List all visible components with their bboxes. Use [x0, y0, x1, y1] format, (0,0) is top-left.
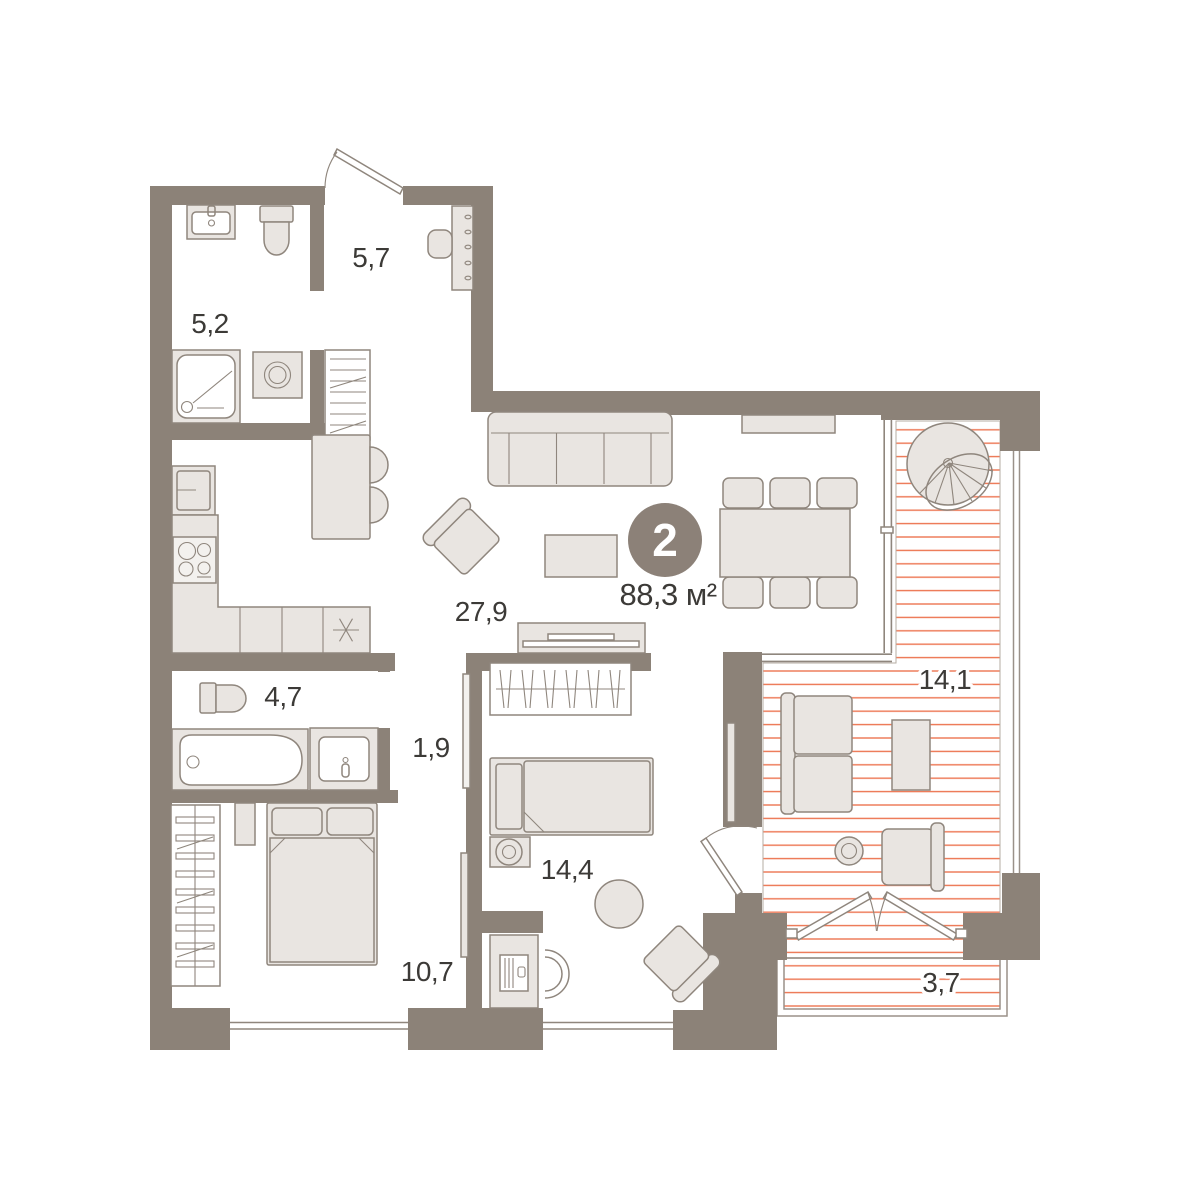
room-label-hallway: 5,7 [352, 242, 389, 273]
hall-bench [428, 230, 452, 258]
headboard [496, 764, 522, 829]
dining-chair [723, 577, 763, 608]
stove [173, 537, 216, 583]
washing-machine [253, 352, 302, 398]
room-label-corridor: 1,9 [412, 732, 449, 763]
floor-plan: 5,7 5,2 27,9 4,7 1,9 10,7 14,4 14,1 3,7 … [0, 0, 1190, 1200]
total-area-label: 88,3 м² [619, 577, 716, 612]
wardrobe-hangers [490, 663, 631, 715]
apartment-badge: 2 88,3 м² [619, 503, 716, 612]
room-label-bedroom-mid: 14,4 [541, 854, 594, 885]
dining-chair [770, 577, 810, 608]
bedroom-mid-furniture [490, 663, 757, 1008]
dining-chair [817, 478, 857, 508]
dining-chair [770, 478, 810, 508]
floor-plan-page: 5,7 5,2 27,9 4,7 1,9 10,7 14,4 14,1 3,7 … [0, 0, 1190, 1200]
outdoor-armchair [882, 823, 944, 891]
tv-panel [727, 723, 735, 822]
balcony [777, 958, 1007, 1016]
room-label-living-kitchen: 27,9 [455, 596, 508, 627]
room-label-bedroom-left: 10,7 [401, 956, 454, 987]
toilet [260, 206, 293, 255]
bedroom-door-leaf [463, 674, 470, 788]
dining-chair [817, 577, 857, 608]
pillow [272, 808, 322, 835]
sofa [488, 412, 672, 486]
single-bed [490, 758, 653, 835]
wardrobe [171, 805, 220, 986]
double-bed [267, 803, 377, 965]
bathtub [172, 729, 308, 790]
outdoor-sofa [781, 693, 852, 814]
coffee-table [545, 535, 617, 577]
terrace-door-swing [706, 826, 757, 838]
room-label-terrace: 14,1 [919, 664, 972, 695]
bar-stool [370, 487, 388, 523]
shower [172, 350, 240, 423]
outdoor-table [892, 720, 930, 790]
bar-table [312, 435, 370, 539]
badge-rooms-count: 2 [652, 514, 678, 566]
tv-panel [461, 853, 468, 957]
room-label-balcony: 3,7 [922, 967, 959, 998]
side-table [835, 837, 863, 865]
desk-chair [545, 950, 569, 998]
entry-door-swing [325, 152, 337, 188]
dining-set [720, 478, 857, 608]
toilet [200, 683, 246, 713]
sideboard [742, 415, 835, 433]
room-label-bathroom-mid: 4,7 [264, 681, 301, 712]
pouf [595, 880, 643, 928]
dining-table [720, 509, 850, 577]
fridge [172, 466, 215, 515]
terrace-door-leaf [701, 838, 742, 896]
tv-console [518, 623, 645, 653]
nightstand [235, 803, 255, 845]
armchair [420, 495, 503, 578]
dining-chair [723, 478, 763, 508]
nightstand-lamp [490, 837, 530, 867]
hallway-furniture [325, 149, 473, 290]
pillow [327, 808, 373, 835]
entry-door-leaf [334, 149, 403, 194]
washbasin [310, 728, 378, 790]
kitchen-furniture [172, 435, 388, 653]
hall-shelf-unit [325, 350, 370, 440]
laptop [500, 955, 528, 991]
room-label-bathroom-top: 5,2 [191, 308, 228, 339]
glazing-joint [881, 527, 893, 533]
bar-stool [370, 447, 388, 483]
desk [490, 935, 538, 1008]
